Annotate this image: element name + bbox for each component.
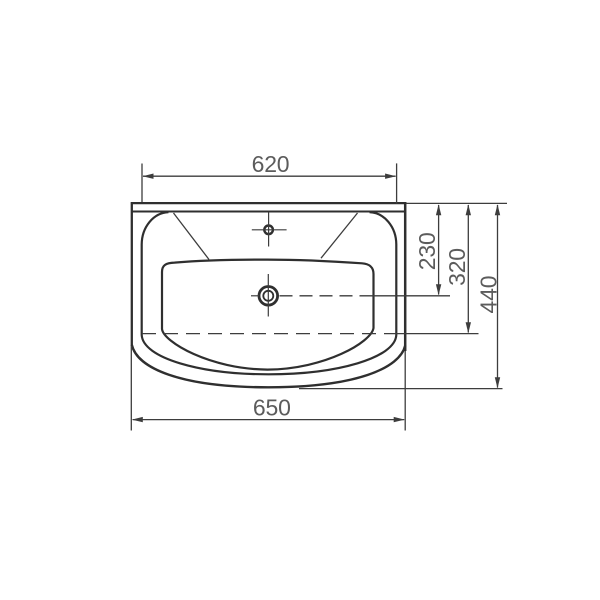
svg-text:440: 440	[476, 276, 502, 314]
svg-text:320: 320	[444, 248, 470, 286]
svg-text:650: 650	[253, 394, 291, 420]
svg-text:230: 230	[414, 232, 440, 270]
svg-text:620: 620	[252, 151, 290, 177]
